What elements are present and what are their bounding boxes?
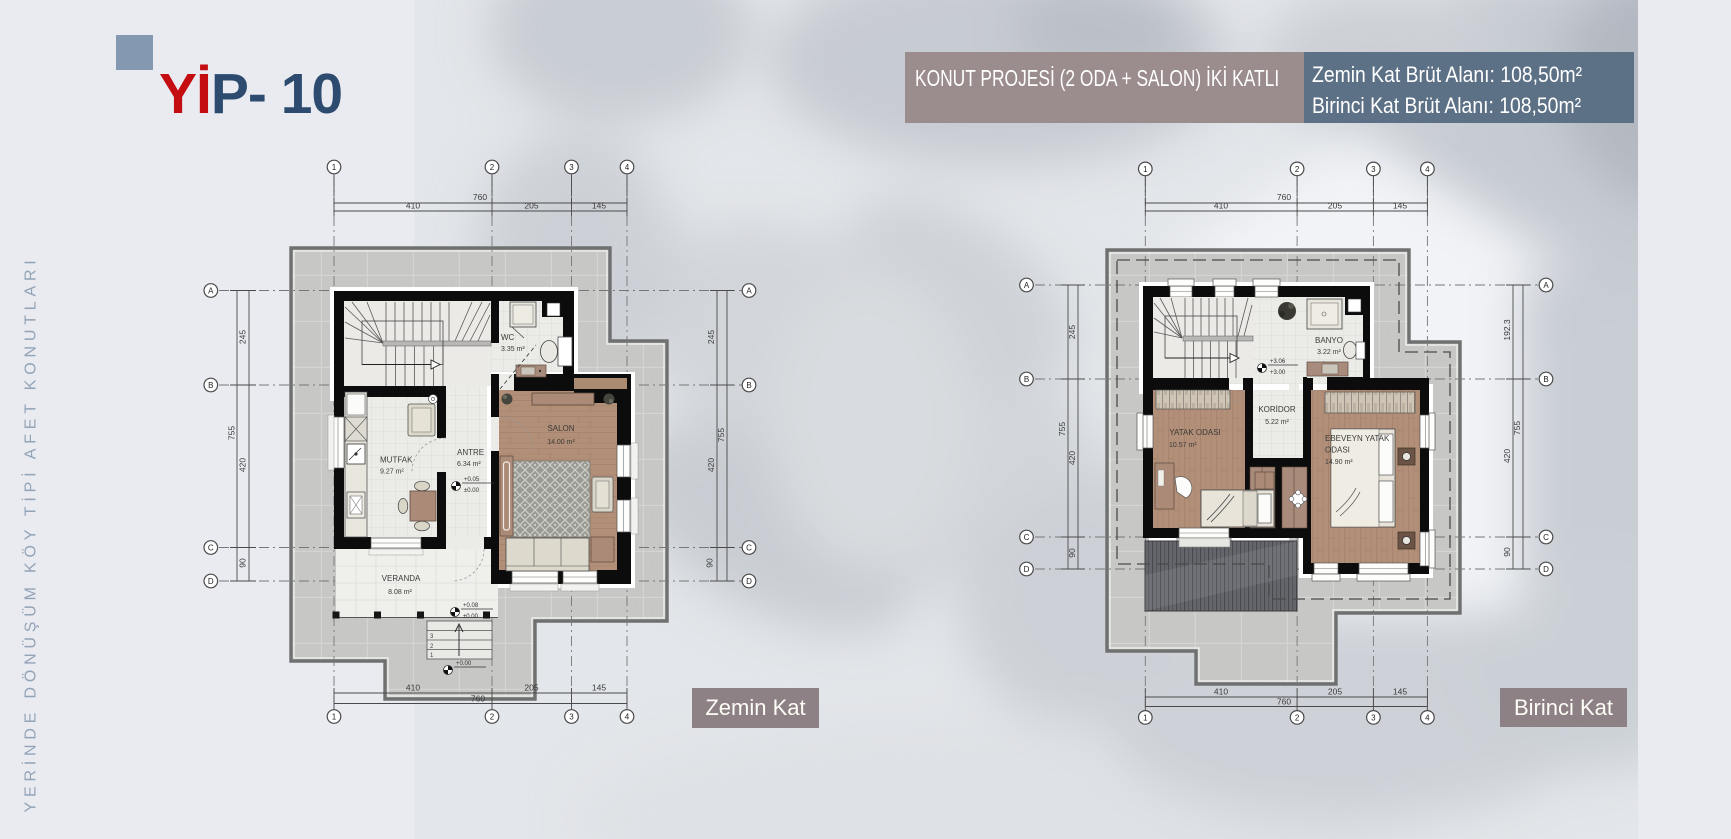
svg-text:4: 4 bbox=[1425, 165, 1430, 174]
svg-text:3.22 m²: 3.22 m² bbox=[1317, 349, 1341, 356]
svg-text:KORİDOR: KORİDOR bbox=[1258, 405, 1296, 414]
svg-text:14.00 m²: 14.00 m² bbox=[547, 439, 575, 446]
svg-text:BANYO: BANYO bbox=[1315, 336, 1343, 345]
svg-text:4: 4 bbox=[1425, 713, 1430, 722]
svg-text:SALON: SALON bbox=[547, 424, 574, 433]
svg-text:B: B bbox=[1543, 375, 1548, 384]
svg-text:90: 90 bbox=[1067, 548, 1077, 558]
svg-text:760: 760 bbox=[1277, 192, 1291, 202]
svg-text:EBEVEYN YATAK: EBEVEYN YATAK bbox=[1325, 434, 1390, 443]
svg-text:VERANDA: VERANDA bbox=[382, 574, 421, 583]
svg-text:D: D bbox=[208, 577, 214, 586]
svg-text:4: 4 bbox=[625, 163, 630, 172]
svg-text:410: 410 bbox=[406, 201, 420, 211]
svg-text:+0.05: +0.05 bbox=[464, 477, 480, 483]
svg-text:3.35 m²: 3.35 m² bbox=[501, 346, 525, 353]
svg-text:205: 205 bbox=[524, 683, 538, 693]
svg-text:755: 755 bbox=[1512, 421, 1522, 435]
svg-text:145: 145 bbox=[592, 201, 606, 211]
svg-text:WC: WC bbox=[501, 333, 515, 342]
svg-text:ODASI: ODASI bbox=[1325, 446, 1350, 455]
svg-text:420: 420 bbox=[1502, 449, 1512, 463]
svg-text:2: 2 bbox=[490, 163, 495, 172]
svg-text:420: 420 bbox=[706, 458, 716, 472]
svg-text:1: 1 bbox=[1143, 165, 1148, 174]
svg-text:145: 145 bbox=[592, 683, 606, 693]
svg-text:1: 1 bbox=[1143, 713, 1148, 722]
svg-text:±0.00: ±0.00 bbox=[464, 488, 480, 494]
svg-text:+0.08: +0.08 bbox=[463, 603, 479, 609]
svg-text:90: 90 bbox=[238, 558, 248, 568]
svg-text:C: C bbox=[208, 544, 214, 553]
svg-text:1: 1 bbox=[332, 713, 337, 722]
svg-text:2: 2 bbox=[490, 713, 495, 722]
svg-text:205: 205 bbox=[524, 201, 538, 211]
svg-text:B: B bbox=[208, 381, 213, 390]
svg-text:C: C bbox=[746, 544, 752, 553]
svg-text:A: A bbox=[208, 287, 214, 296]
svg-text:4: 4 bbox=[625, 713, 630, 722]
svg-text:±0.00: ±0.00 bbox=[463, 614, 479, 620]
svg-text:C: C bbox=[1024, 533, 1030, 542]
svg-text:B: B bbox=[1024, 375, 1029, 384]
svg-text:2: 2 bbox=[1295, 713, 1300, 722]
svg-text:D: D bbox=[746, 577, 752, 586]
svg-text:6.34 m²: 6.34 m² bbox=[457, 461, 481, 468]
svg-text:3: 3 bbox=[569, 163, 574, 172]
svg-text:A: A bbox=[1024, 281, 1030, 290]
svg-text:205: 205 bbox=[1328, 201, 1342, 211]
svg-text:3: 3 bbox=[1371, 165, 1376, 174]
svg-text:245: 245 bbox=[706, 330, 716, 344]
svg-text:760: 760 bbox=[1277, 697, 1291, 707]
svg-text:5.22 m²: 5.22 m² bbox=[1265, 419, 1289, 426]
svg-text:245: 245 bbox=[1067, 325, 1077, 339]
svg-text:760: 760 bbox=[471, 694, 485, 704]
svg-text:192.3: 192.3 bbox=[1502, 319, 1512, 341]
svg-text:760: 760 bbox=[473, 192, 487, 202]
svg-text:3: 3 bbox=[1371, 713, 1376, 722]
svg-text:ANTRE: ANTRE bbox=[457, 448, 484, 457]
svg-text:145: 145 bbox=[1393, 201, 1407, 211]
svg-text:B: B bbox=[746, 381, 751, 390]
svg-text:755: 755 bbox=[716, 428, 726, 442]
svg-text:8.08 m²: 8.08 m² bbox=[388, 589, 412, 596]
svg-text:245: 245 bbox=[238, 330, 248, 344]
svg-text:MUTFAK: MUTFAK bbox=[380, 456, 413, 465]
svg-text:755: 755 bbox=[227, 426, 237, 440]
svg-text:+0.00: +0.00 bbox=[456, 661, 472, 667]
svg-text:D: D bbox=[1543, 565, 1549, 574]
svg-text:A: A bbox=[1543, 281, 1549, 290]
svg-text:9.27 m²: 9.27 m² bbox=[380, 469, 404, 476]
svg-text:145: 145 bbox=[1393, 687, 1407, 697]
svg-text:+3.00: +3.00 bbox=[1270, 370, 1286, 376]
svg-text:410: 410 bbox=[1214, 201, 1228, 211]
svg-text:YATAK ODASI: YATAK ODASI bbox=[1169, 428, 1221, 437]
svg-text:420: 420 bbox=[1067, 451, 1077, 465]
svg-text:C: C bbox=[1543, 533, 1549, 542]
svg-text:3: 3 bbox=[569, 713, 574, 722]
svg-text:D: D bbox=[1024, 565, 1030, 574]
svg-text:14.90 m²: 14.90 m² bbox=[1325, 459, 1353, 466]
svg-text:420: 420 bbox=[238, 458, 248, 472]
svg-text:410: 410 bbox=[406, 683, 420, 693]
svg-text:10.57 m²: 10.57 m² bbox=[1169, 442, 1197, 449]
svg-text:410: 410 bbox=[1214, 687, 1228, 697]
svg-text:755: 755 bbox=[1057, 422, 1067, 436]
svg-text:1: 1 bbox=[332, 163, 337, 172]
svg-text:90: 90 bbox=[1502, 547, 1512, 557]
svg-text:+3.06: +3.06 bbox=[1270, 359, 1286, 365]
svg-text:A: A bbox=[746, 287, 752, 296]
svg-text:205: 205 bbox=[1328, 687, 1342, 697]
svg-text:90: 90 bbox=[705, 558, 715, 568]
svg-text:2: 2 bbox=[1295, 165, 1300, 174]
